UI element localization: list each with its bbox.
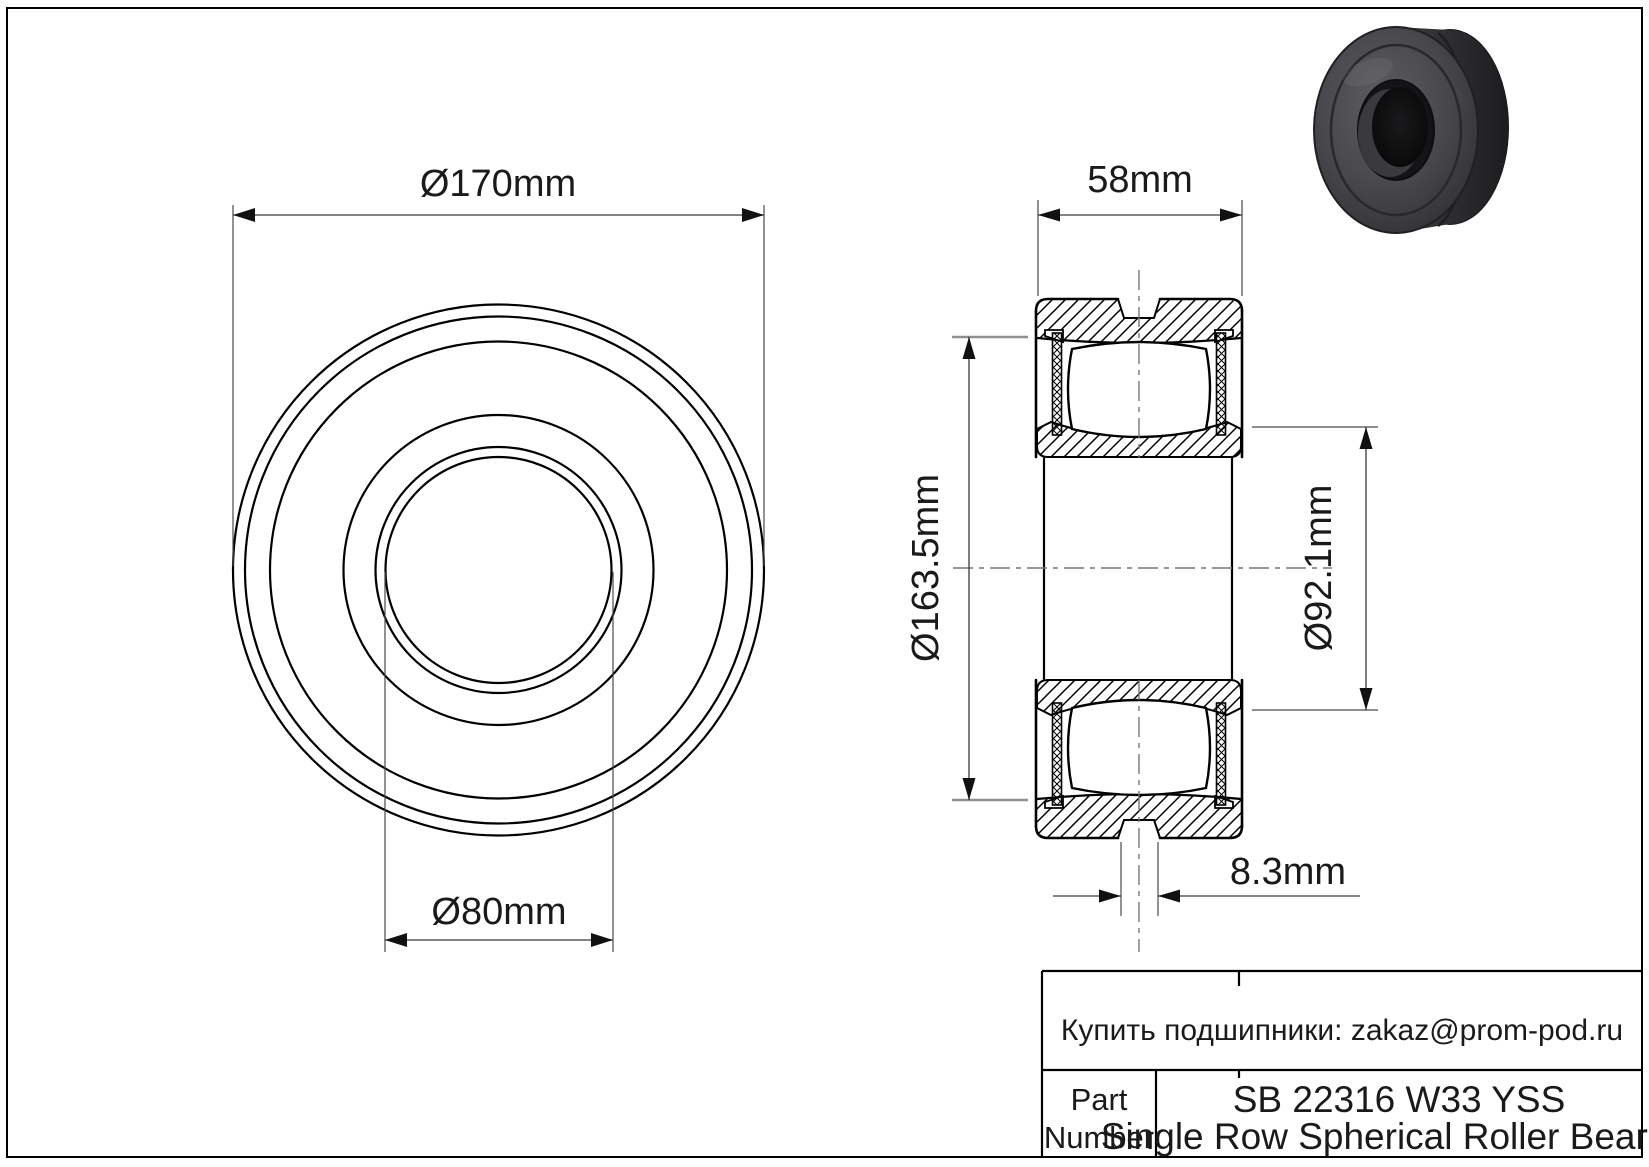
section-width-label: 58mm: [1087, 159, 1193, 201]
bearing-drawing: Ø170mm Ø80mm: [0, 0, 1649, 1167]
bearing-3d-render: [1314, 27, 1508, 233]
front-view-circles: [233, 305, 764, 836]
front-bore-diameter-label: Ø80mm: [431, 891, 566, 933]
contact-line: Купить подшипники: zakaz@prom-pod.ru: [1061, 1014, 1623, 1047]
section-inner-raceway-label: Ø92.1mm: [1298, 485, 1340, 652]
front-view: Ø170mm Ø80mm: [233, 163, 764, 952]
part-label-line1: Part: [1071, 1082, 1128, 1117]
section-groove-label: 8.3mm: [1230, 851, 1346, 893]
part-number-value: SB 22316 W33 YSS: [1233, 1079, 1566, 1120]
dim-groove-width: 8.3mm: [1053, 842, 1360, 916]
dim-inner-raceway: Ø92.1mm: [1252, 427, 1378, 710]
dim-outer-diameter: Ø170mm: [233, 163, 764, 566]
section-outer-raceway-label: Ø163.5mm: [905, 474, 947, 662]
section-view: 58mm Ø163.5mm Ø92.1mm 8.3mm: [905, 159, 1378, 952]
title-block: Купить подшипники: zakaz@prom-pod.ru Par…: [1042, 971, 1649, 1157]
front-outer-diameter-label: Ø170mm: [420, 163, 576, 205]
part-description: Single Row Spherical Roller Bearing: [1101, 1116, 1649, 1157]
drawing-sheet: Ø170mm Ø80mm: [0, 0, 1649, 1167]
dim-width: 58mm: [1038, 159, 1242, 296]
dim-bore-diameter: Ø80mm: [385, 572, 613, 952]
